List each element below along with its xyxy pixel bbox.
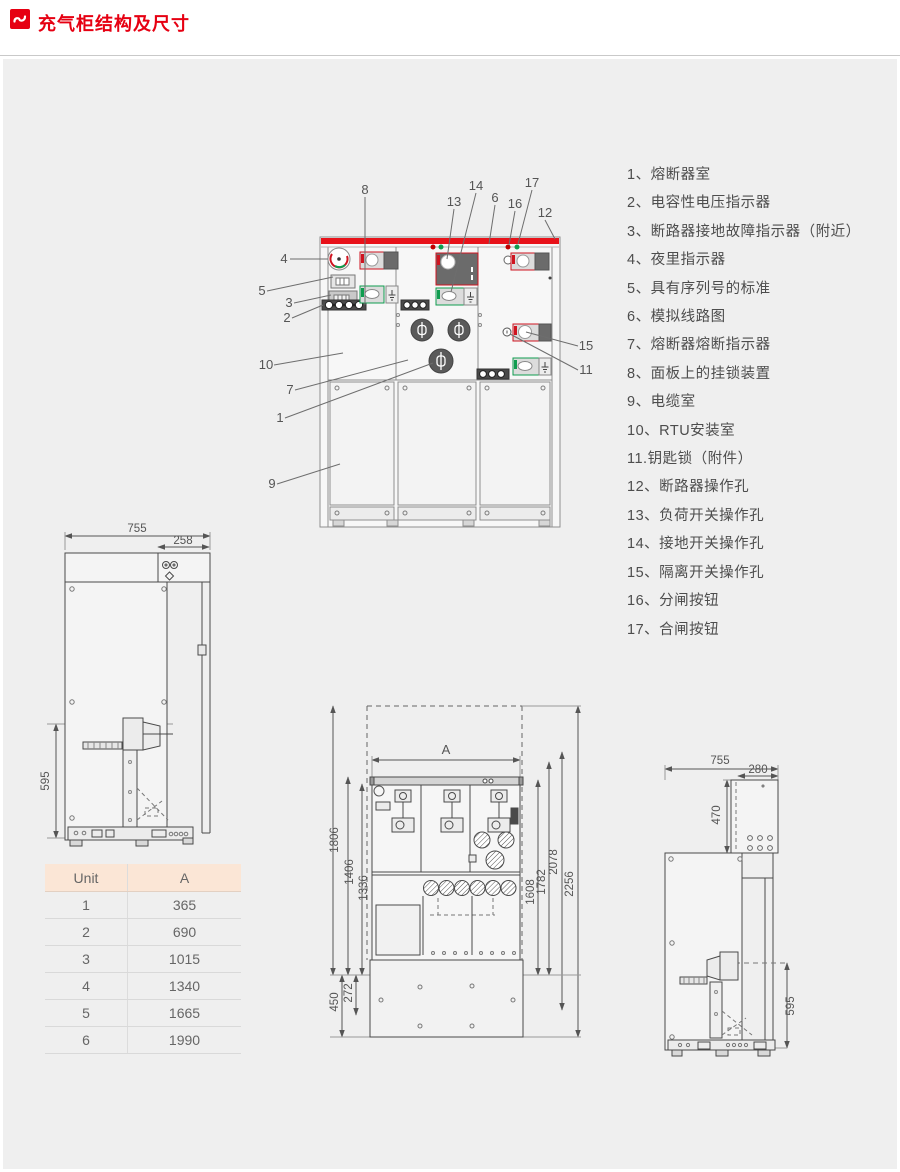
table-row: 2 690 — [45, 919, 241, 946]
legend-item: 10、RTU安装室 — [627, 417, 897, 445]
legend-item: 1、熔断器室 — [627, 161, 897, 189]
capacitive-voltage-indicator-left — [322, 300, 366, 310]
capacitive-voltage-indicator-mid — [401, 300, 429, 310]
dim-755-left: 755 — [127, 523, 146, 535]
dim-1406: 1406 — [344, 859, 356, 885]
legend-item: 12、断路器操作孔 — [627, 473, 897, 501]
table-header-unit: Unit — [45, 864, 128, 892]
header-divider — [0, 55, 900, 56]
table-cell-a: 365 — [128, 892, 242, 919]
earth-switch-mechanism-right — [513, 358, 551, 375]
open-button-dot-mid — [431, 245, 436, 250]
dim-595-left: 595 — [40, 771, 52, 790]
close-button-dot-mid — [439, 245, 444, 250]
callout-13: 13 — [447, 194, 461, 209]
table-cell-unit: 3 — [45, 946, 128, 973]
cabinet-base — [370, 960, 523, 1037]
cabinet-front-view-drawing: 8 13 14 6 16 17 12 4 5 3 2 10 7 1 9 15 1… — [253, 170, 603, 542]
callout-4: 4 — [280, 251, 287, 266]
legend-item: 8、面板上的挂锁装置 — [627, 360, 897, 388]
callout-17: 17 — [525, 175, 539, 190]
dim-272: 272 — [343, 983, 355, 1002]
table-cell-a: 1990 — [128, 1027, 242, 1054]
callout-15: 15 — [579, 338, 593, 353]
table-cell-unit: 5 — [45, 1000, 128, 1027]
dim-1336: 1336 — [358, 875, 370, 901]
cabinet-front-dimension-drawing: A 1806 1406 1336 450 272 1608 1782 2078 … — [325, 690, 625, 1050]
section-marker-icon — [10, 9, 30, 29]
dimension-table: Unit A 1 365 2 690 3 1015 4 1340 5 1665 … — [45, 864, 241, 1054]
load-switch-mechanism-left — [360, 252, 398, 269]
callout-1: 1 — [276, 410, 283, 425]
dim-2256: 2256 — [564, 871, 576, 897]
table-cell-a: 1665 — [128, 1000, 242, 1027]
legend-item: 15、隔离开关操作孔 — [627, 559, 897, 587]
earth-switch-mechanism-mid — [436, 288, 477, 305]
dim-2078: 2078 — [548, 849, 560, 875]
dim-450: 450 — [329, 992, 341, 1011]
callout-8: 8 — [361, 182, 368, 197]
open-button-dot-right — [506, 245, 511, 250]
page-title: 充气柜结构及尺寸 — [38, 10, 190, 36]
table-row: 6 1990 — [45, 1027, 241, 1054]
callout-2: 2 — [283, 310, 290, 325]
dim-470: 470 — [711, 805, 723, 824]
earth-switch-mechanism-left — [360, 286, 398, 303]
table-header-a: A — [128, 864, 242, 892]
table-row: 5 1665 — [45, 1000, 241, 1027]
callout-11: 11 — [579, 362, 593, 377]
table-cell-unit: 4 — [45, 973, 128, 1000]
dim-258: 258 — [173, 535, 192, 547]
legend-item: 5、具有序列号的标准 — [627, 275, 897, 303]
dim-a: A — [442, 742, 451, 757]
cabinet-side-view-right-drawing: 755 280 470 595 — [650, 748, 880, 1068]
dim-595-right: 595 — [785, 996, 797, 1015]
legend-item: 3、断路器接地故障指示器（附近） — [627, 218, 897, 246]
table-cell-unit: 1 — [45, 892, 128, 919]
table-row: 4 1340 — [45, 973, 241, 1000]
cabinet-side-view-left-drawing: 755 258 124 595 — [40, 520, 255, 865]
legend-item: 7、熔断器熔断指示器 — [627, 331, 897, 359]
capacitive-voltage-indicator-right — [477, 369, 509, 379]
legend-item: 4、夜里指示器 — [627, 246, 897, 274]
table-cell-unit: 2 — [45, 919, 128, 946]
load-switch-mechanism-right — [511, 253, 549, 270]
close-button-dot-right — [515, 245, 520, 250]
callout-12: 12 — [538, 205, 552, 220]
callout-10: 10 — [259, 357, 273, 372]
cable-compartment-doors — [330, 382, 550, 526]
table-row: 1 365 — [45, 892, 241, 919]
callout-14: 14 — [469, 178, 483, 193]
table-cell-a: 690 — [128, 919, 242, 946]
voltage-presence-indicator — [328, 248, 350, 270]
legend-item: 13、负荷开关操作孔 — [627, 502, 897, 530]
callout-7: 7 — [286, 382, 293, 397]
legend-item: 9、电缆室 — [627, 388, 897, 416]
legend-item: 17、合闸按钮 — [627, 616, 897, 644]
table-cell-a: 1340 — [128, 973, 242, 1000]
dim-280: 280 — [748, 764, 767, 776]
dim-755-right: 755 — [710, 755, 729, 767]
dim-1782: 1782 — [536, 869, 548, 895]
page-header: 充气柜结构及尺寸 — [0, 0, 900, 56]
legend-item: 6、模拟线路图 — [627, 303, 897, 331]
legend-item: 16、分闸按钮 — [627, 587, 897, 615]
legend-item: 11.钥匙锁（附件） — [627, 445, 897, 473]
serial-number-plate — [331, 275, 355, 288]
callout-16: 16 — [508, 196, 522, 211]
callout-5: 5 — [258, 283, 265, 298]
front-red-strip — [321, 238, 559, 244]
table-cell-a: 1015 — [128, 946, 242, 973]
key-lock — [503, 328, 511, 336]
callout-9: 9 — [268, 476, 275, 491]
callout-3: 3 — [285, 295, 292, 310]
dim-1806: 1806 — [329, 827, 341, 853]
callout-6: 6 — [491, 190, 498, 205]
cabinet-outline — [370, 777, 523, 1037]
table-row: 3 1015 — [45, 946, 241, 973]
table-cell-unit: 6 — [45, 1027, 128, 1054]
legend-list: 1、熔断器室 2、电容性电压指示器 3、断路器接地故障指示器（附近） 4、夜里指… — [627, 161, 897, 644]
legend-item: 14、接地开关操作孔 — [627, 530, 897, 558]
legend-item: 2、电容性电压指示器 — [627, 189, 897, 217]
